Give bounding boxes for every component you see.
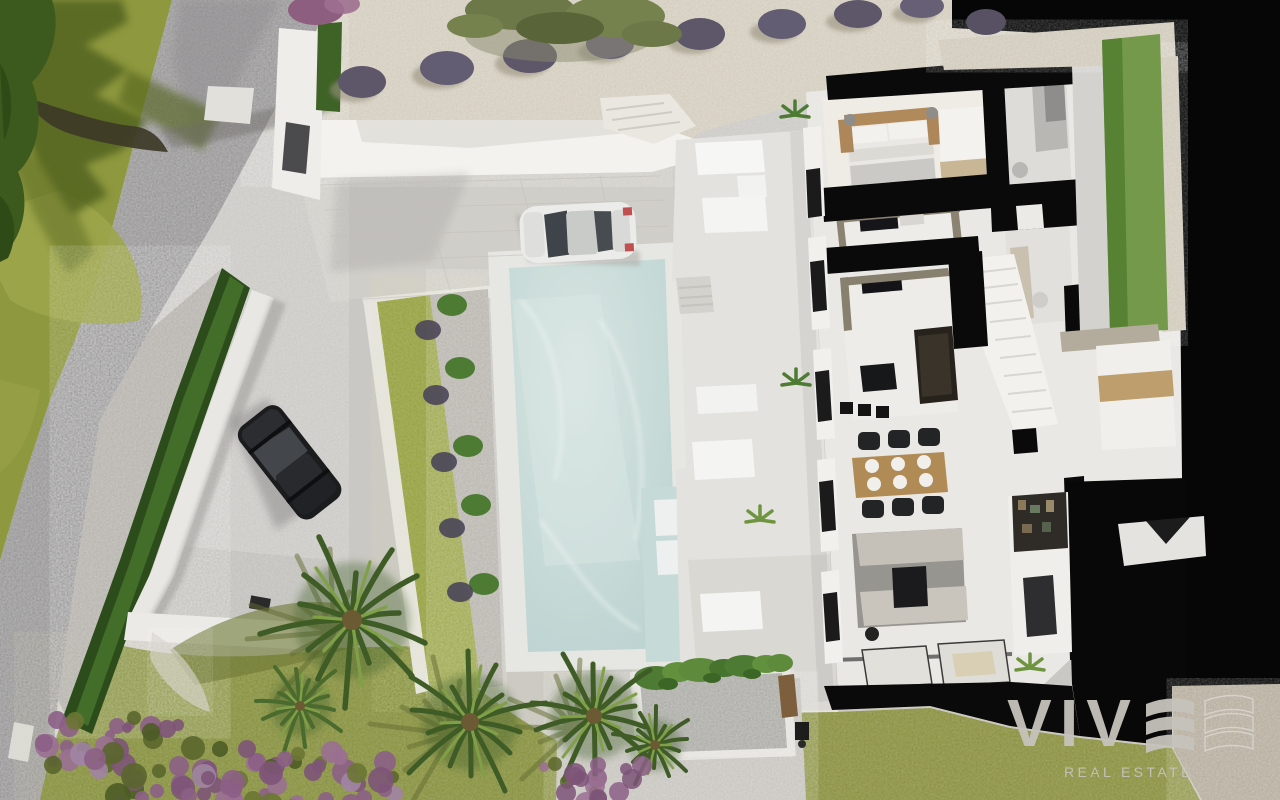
svg-text:REAL ESTATE: REAL ESTATE — [1064, 764, 1194, 780]
svg-text:VIV: VIV — [1007, 686, 1139, 761]
